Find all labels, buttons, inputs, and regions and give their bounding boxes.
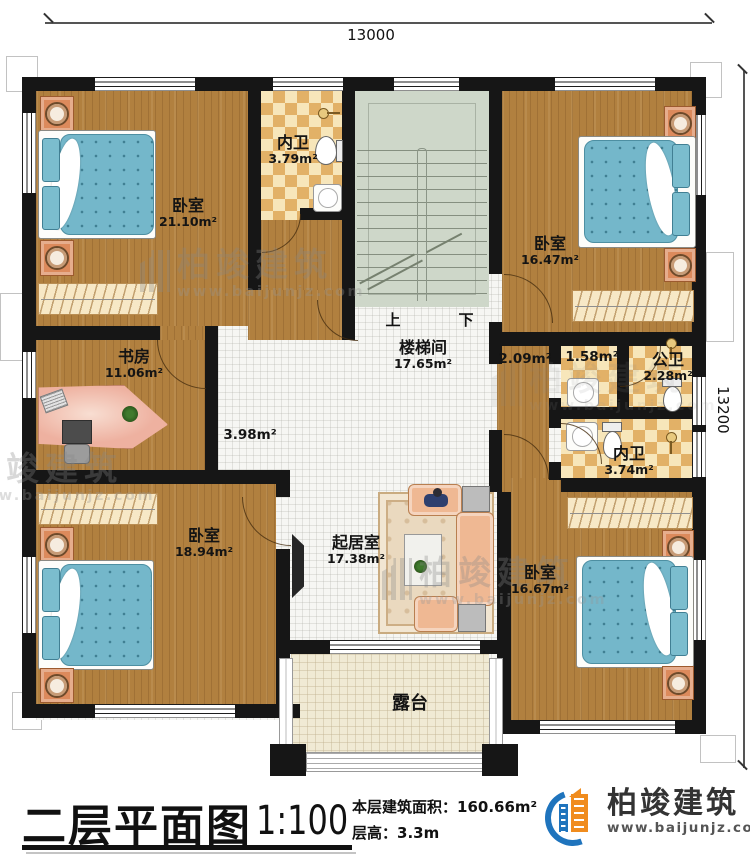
desk-chair bbox=[64, 444, 90, 464]
room-area: 3.98m² bbox=[223, 428, 276, 443]
room-area: 18.94m² bbox=[175, 545, 233, 559]
room-area: 2.28m² bbox=[643, 369, 692, 383]
sink-icon bbox=[313, 184, 342, 212]
side-table bbox=[462, 486, 490, 512]
window bbox=[540, 720, 675, 734]
room-label-terrace: 露台 bbox=[392, 694, 428, 714]
room-area: 17.65m² bbox=[394, 357, 452, 371]
shower-head-icon bbox=[666, 432, 677, 443]
side-table bbox=[458, 604, 486, 632]
window bbox=[692, 377, 706, 425]
wall bbox=[205, 326, 218, 470]
room-name: 卧室 bbox=[159, 197, 217, 215]
area-label-landing: 2.09m² bbox=[498, 352, 551, 367]
nightstand bbox=[664, 106, 696, 140]
window bbox=[692, 560, 706, 640]
lamp-icon bbox=[45, 674, 69, 698]
armchair bbox=[414, 596, 458, 632]
wall bbox=[561, 478, 692, 492]
stair-up-label: 上 bbox=[385, 309, 400, 330]
nightstand bbox=[40, 240, 74, 276]
brand-logo: 柏竣建筑 www.baijunjz.com bbox=[545, 788, 750, 844]
sink-icon bbox=[567, 378, 599, 407]
toilet-icon bbox=[663, 386, 682, 412]
plant-icon bbox=[122, 406, 138, 422]
shower-stem bbox=[670, 441, 672, 454]
exterior-column bbox=[706, 252, 734, 342]
shower-stem bbox=[327, 112, 340, 114]
floor-height-line: 层高：3.3m bbox=[352, 822, 439, 843]
room-area: 17.38m² bbox=[327, 552, 385, 566]
window bbox=[95, 77, 195, 91]
right-dimension-line bbox=[743, 70, 745, 768]
floor-plan-page: 13000 13200 bbox=[0, 0, 750, 860]
terrace-railing bbox=[489, 658, 503, 754]
nightstand bbox=[40, 96, 74, 132]
room-name: 卧室 bbox=[175, 527, 233, 545]
terrace-railing bbox=[279, 658, 293, 754]
logo-building-orange bbox=[571, 794, 588, 832]
nightstand bbox=[662, 666, 694, 700]
room-area: 16.47m² bbox=[521, 253, 579, 267]
room-name: 楼梯间 bbox=[394, 339, 452, 357]
wall bbox=[549, 398, 561, 428]
pillow bbox=[670, 612, 688, 656]
room-label-living: 起居室 17.38m² bbox=[327, 534, 385, 566]
lamp-icon bbox=[669, 254, 692, 277]
room-terrace bbox=[291, 654, 489, 754]
room-name: 卧室 bbox=[511, 564, 569, 582]
pillow bbox=[670, 566, 688, 610]
wall bbox=[489, 430, 502, 492]
wall bbox=[489, 91, 502, 274]
study-doorway bbox=[160, 326, 205, 340]
room-name: 内卫 bbox=[604, 445, 653, 463]
wardrobe bbox=[38, 283, 158, 315]
floor-area-value: 160.66m² bbox=[457, 798, 537, 816]
room-area: 21.10m² bbox=[159, 215, 217, 229]
logo-building-blue bbox=[559, 804, 568, 832]
room-area: 1.58m² bbox=[565, 350, 618, 365]
nightstand bbox=[664, 248, 696, 282]
toilet-icon bbox=[315, 136, 337, 165]
exterior-column bbox=[700, 735, 736, 763]
terrace-railing bbox=[306, 752, 484, 772]
wardrobe bbox=[572, 290, 694, 322]
room-area: 11.06m² bbox=[105, 366, 163, 380]
window bbox=[692, 432, 706, 477]
shower-head-icon bbox=[318, 108, 329, 119]
window bbox=[22, 557, 36, 633]
toilet-tank bbox=[336, 140, 343, 162]
wall bbox=[22, 326, 160, 340]
room-name: 卧室 bbox=[521, 235, 579, 253]
wall bbox=[22, 470, 290, 484]
room-label-bath-right: 内卫 3.74m² bbox=[604, 445, 653, 477]
floor-height-label: 层高： bbox=[352, 824, 397, 842]
nightstand bbox=[40, 527, 74, 562]
wall bbox=[248, 91, 261, 290]
area-label-hall: 3.98m² bbox=[223, 428, 276, 443]
pillow bbox=[42, 568, 60, 612]
floor-area-label: 本层建筑面积： bbox=[352, 798, 457, 816]
sofa bbox=[456, 512, 494, 606]
room-label-bedroom-bottom-left: 卧室 18.94m² bbox=[175, 527, 233, 559]
room-label-bedroom-bottom-right: 卧室 16.67m² bbox=[511, 564, 569, 596]
brand-name: 柏竣建筑 bbox=[607, 788, 750, 820]
drawing-scale: 1:100 bbox=[256, 798, 348, 844]
terrace-post bbox=[482, 744, 518, 776]
terrace-sliding-door bbox=[330, 640, 480, 654]
pillow bbox=[42, 138, 60, 182]
room-name: 露台 bbox=[392, 694, 428, 714]
wardrobe bbox=[567, 497, 693, 529]
room-area: 3.79m² bbox=[268, 152, 317, 166]
pillow bbox=[42, 186, 60, 230]
lamp-icon bbox=[45, 102, 69, 126]
title-underline-shadow bbox=[26, 852, 356, 854]
person-figure-head bbox=[433, 488, 442, 497]
lamp-icon bbox=[45, 246, 69, 270]
wall bbox=[276, 484, 290, 497]
title-block: 二层平面图 1:100 本层建筑面积：160.66m² 层高：3.3m 柏竣建筑… bbox=[0, 786, 750, 860]
brand-logo-icon bbox=[545, 788, 599, 844]
flowers-icon bbox=[414, 560, 427, 573]
lamp-icon bbox=[667, 672, 690, 695]
lamp-icon bbox=[45, 533, 69, 557]
monitor-icon bbox=[62, 420, 92, 444]
room-label-public-bath: 公卫 2.28m² bbox=[643, 351, 692, 383]
shower-head-icon bbox=[666, 338, 677, 349]
room-label-study: 书房 11.06m² bbox=[105, 348, 163, 380]
wall bbox=[502, 332, 692, 346]
pillow bbox=[672, 192, 690, 236]
room-label-bath-top: 内卫 3.79m² bbox=[268, 134, 317, 166]
brand-url: www.baijunjz.com bbox=[607, 820, 750, 836]
wall bbox=[549, 462, 561, 480]
pillow bbox=[672, 144, 690, 188]
floor-area-line: 本层建筑面积：160.66m² bbox=[352, 796, 537, 817]
area-label-bath-lobby: 1.58m² bbox=[565, 350, 618, 365]
window bbox=[22, 352, 36, 398]
lamp-icon bbox=[669, 112, 692, 135]
pillow bbox=[42, 616, 60, 660]
floor-height-value: 3.3m bbox=[397, 824, 439, 842]
room-label-bedroom-top-right: 卧室 16.47m² bbox=[521, 235, 579, 267]
room-label-bedroom-top-left: 卧室 21.10m² bbox=[159, 197, 217, 229]
room-label-stairwell: 楼梯间 17.65m² bbox=[394, 339, 452, 371]
wall bbox=[489, 322, 502, 346]
room-area: 3.74m² bbox=[604, 463, 653, 477]
top-dimension-line bbox=[45, 22, 712, 24]
right-dimension-value: 13200 bbox=[714, 383, 732, 437]
room-name: 起居室 bbox=[327, 534, 385, 552]
room-name: 书房 bbox=[105, 348, 163, 366]
window bbox=[394, 77, 459, 91]
terrace-post bbox=[270, 744, 306, 776]
nightstand bbox=[40, 668, 74, 703]
room-name: 公卫 bbox=[643, 351, 692, 369]
window bbox=[555, 77, 655, 91]
stair-down-label: 下 bbox=[458, 309, 473, 330]
window bbox=[22, 113, 36, 193]
stair-rail bbox=[417, 148, 427, 301]
room-area: 2.09m² bbox=[498, 352, 551, 367]
room-area: 16.67m² bbox=[511, 582, 569, 596]
top-dimension-value: 13000 bbox=[344, 26, 398, 44]
room-name: 内卫 bbox=[268, 134, 317, 152]
window bbox=[95, 704, 235, 718]
title-underline bbox=[22, 845, 352, 850]
wardrobe bbox=[38, 493, 158, 525]
window bbox=[273, 77, 343, 91]
